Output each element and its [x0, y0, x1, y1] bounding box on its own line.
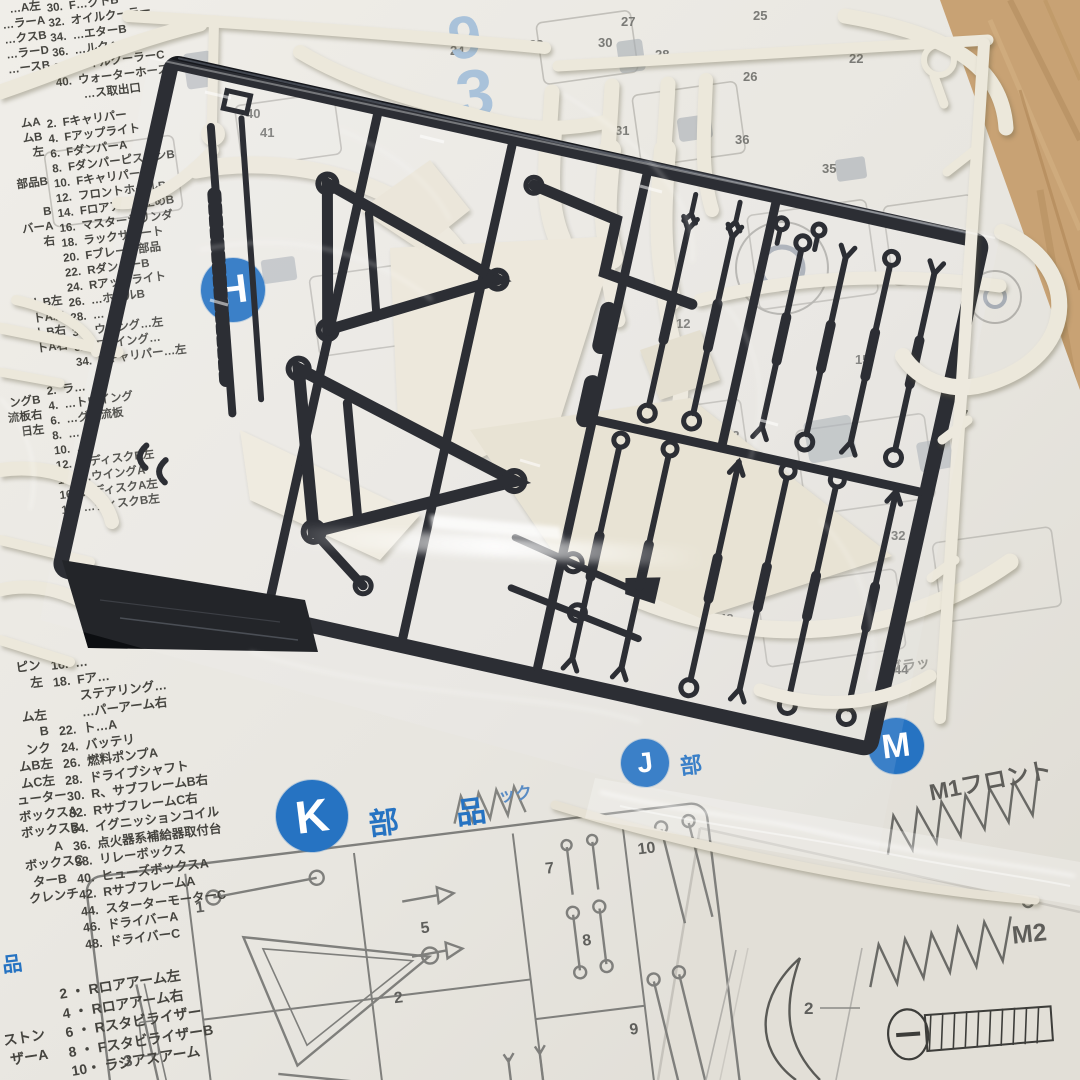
photo-model-kit-sprues: 1 2 3 4 5 6 7 8 9 10 2 [0, 0, 1080, 1080]
bag-body [40, 55, 1000, 852]
plastic-bag [0, 0, 1080, 1080]
